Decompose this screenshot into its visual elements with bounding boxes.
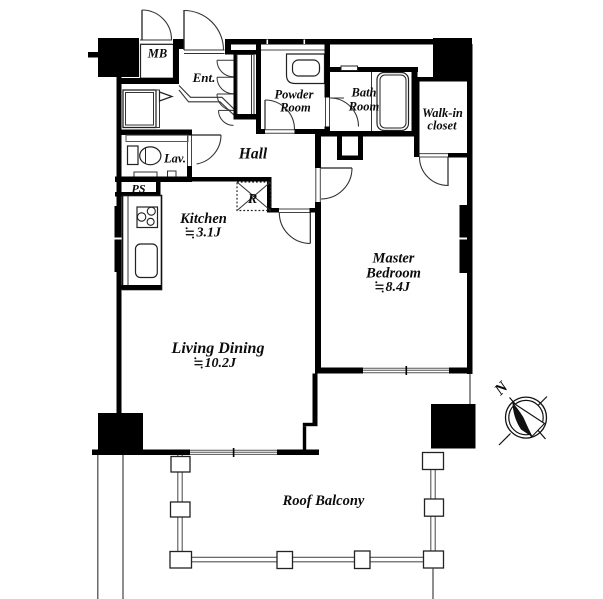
svg-text:PS: PS	[131, 182, 145, 196]
svg-text:Living Dining: Living Dining	[171, 340, 265, 357]
svg-text:Room: Room	[348, 100, 380, 114]
svg-text:closet: closet	[427, 119, 457, 133]
svg-text:8.4J: 8.4J	[386, 280, 412, 295]
svg-text:R: R	[247, 192, 257, 207]
svg-text:Lav.: Lav.	[163, 152, 186, 166]
svg-text:MB: MB	[147, 47, 167, 61]
svg-text:Ent.: Ent.	[192, 70, 216, 85]
svg-text:Master: Master	[372, 251, 415, 267]
svg-text:Roof Balcony: Roof Balcony	[282, 493, 365, 509]
svg-text:Bath: Bath	[350, 86, 376, 100]
svg-text:3.1J: 3.1J	[196, 226, 223, 241]
svg-text:10.2J: 10.2J	[205, 356, 238, 371]
svg-text:Powder: Powder	[275, 88, 314, 102]
svg-text:Hall: Hall	[238, 146, 268, 163]
